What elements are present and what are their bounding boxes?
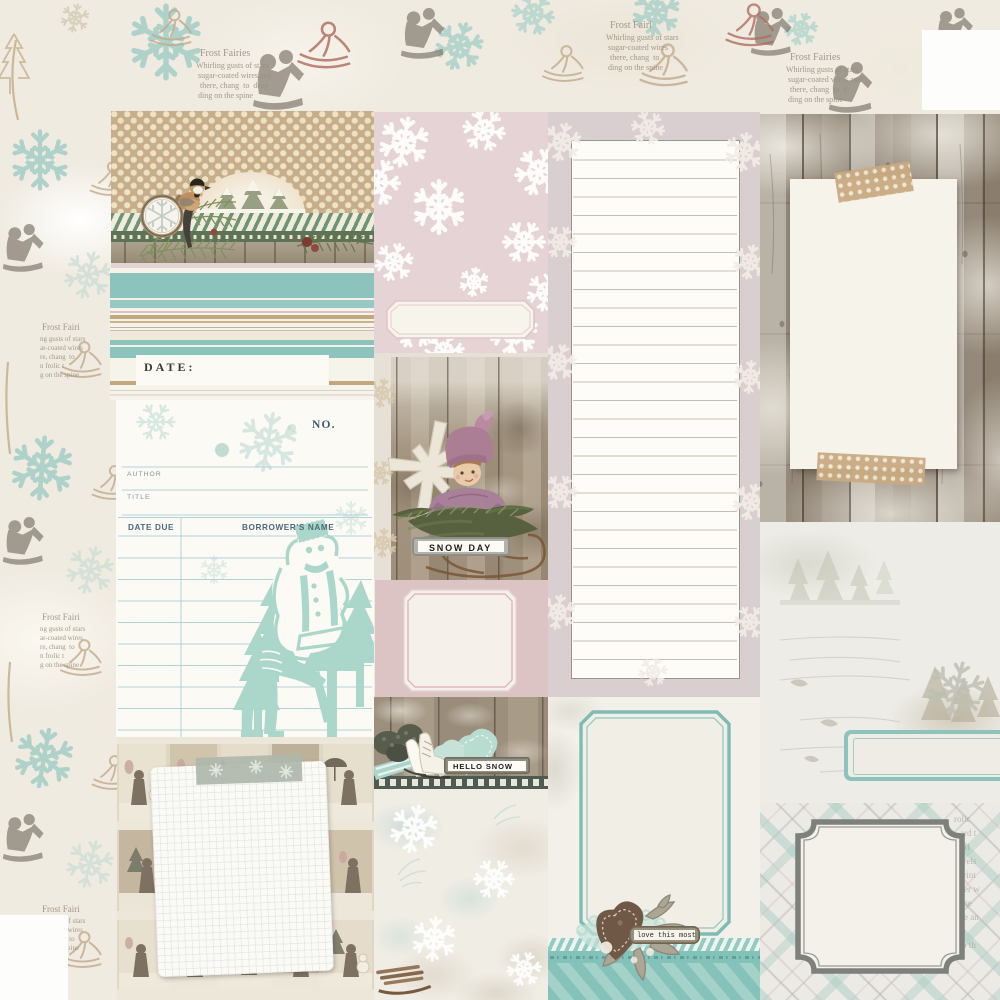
svg-text:ng gusts of stars: ng gusts of stars xyxy=(40,625,86,633)
svg-text:Whirling gusts of stars: Whirling gusts of stars xyxy=(606,33,679,42)
svg-text:sugar-coated wires: sugar-coated wires xyxy=(608,43,668,52)
svg-text:sugar-coated wires and: sugar-coated wires and xyxy=(788,75,862,84)
svg-text:Frost Fairies: Frost Fairies xyxy=(790,52,840,63)
svg-text:there, chang to d: there, chang to d xyxy=(790,85,847,94)
svg-text:Frost Fairi: Frost Fairi xyxy=(610,20,652,31)
svg-text:Whirling gusts of stars: Whirling gusts of stars xyxy=(786,65,859,74)
svg-text:AUTHOR: AUTHOR xyxy=(127,471,162,478)
svg-text:Frost Fairi: Frost Fairi xyxy=(42,612,80,622)
svg-text:g on the spine: g on the spine xyxy=(40,661,79,669)
svg-text:sugar-coated wires and: sugar-coated wires and xyxy=(198,71,272,80)
svg-text:Frost Fairies: Frost Fairies xyxy=(200,48,250,59)
svg-text:re, chang to: re, chang to xyxy=(40,643,75,651)
svg-text:BORROWER'S NAME: BORROWER'S NAME xyxy=(242,523,334,532)
svg-text:ding on the spine: ding on the spine xyxy=(198,91,253,100)
svg-text:Whirling gusts of stars: Whirling gusts of stars xyxy=(196,61,269,70)
svg-text:Frost Fairi: Frost Fairi xyxy=(42,904,80,914)
svg-text:er w: er w xyxy=(964,884,980,894)
svg-text:TITLE: TITLE xyxy=(127,494,151,501)
svg-text:DATE DUE: DATE DUE xyxy=(128,523,174,532)
svg-text:ding on the spine: ding on the spine xyxy=(788,95,843,104)
svg-text:n frolic t: n frolic t xyxy=(40,652,64,660)
svg-text:ng gusts of stars: ng gusts of stars xyxy=(40,335,86,343)
svg-text:there, chang to: there, chang to xyxy=(610,53,659,62)
svg-text:ding on the spine: ding on the spine xyxy=(608,63,663,72)
svg-text:ar-coated wires: ar-coated wires xyxy=(40,634,83,642)
svg-text:re, chang to: re, chang to xyxy=(40,353,75,361)
svg-text:g on the spine: g on the spine xyxy=(40,371,79,379)
svg-text:there, chang to deep: there, chang to deep xyxy=(200,81,268,90)
svg-text:Frost Fairi: Frost Fairi xyxy=(42,322,80,332)
svg-text:n frolic t: n frolic t xyxy=(40,362,64,370)
svg-text:ar-coated wires: ar-coated wires xyxy=(40,344,83,352)
svg-text:NO.: NO. xyxy=(312,419,336,431)
